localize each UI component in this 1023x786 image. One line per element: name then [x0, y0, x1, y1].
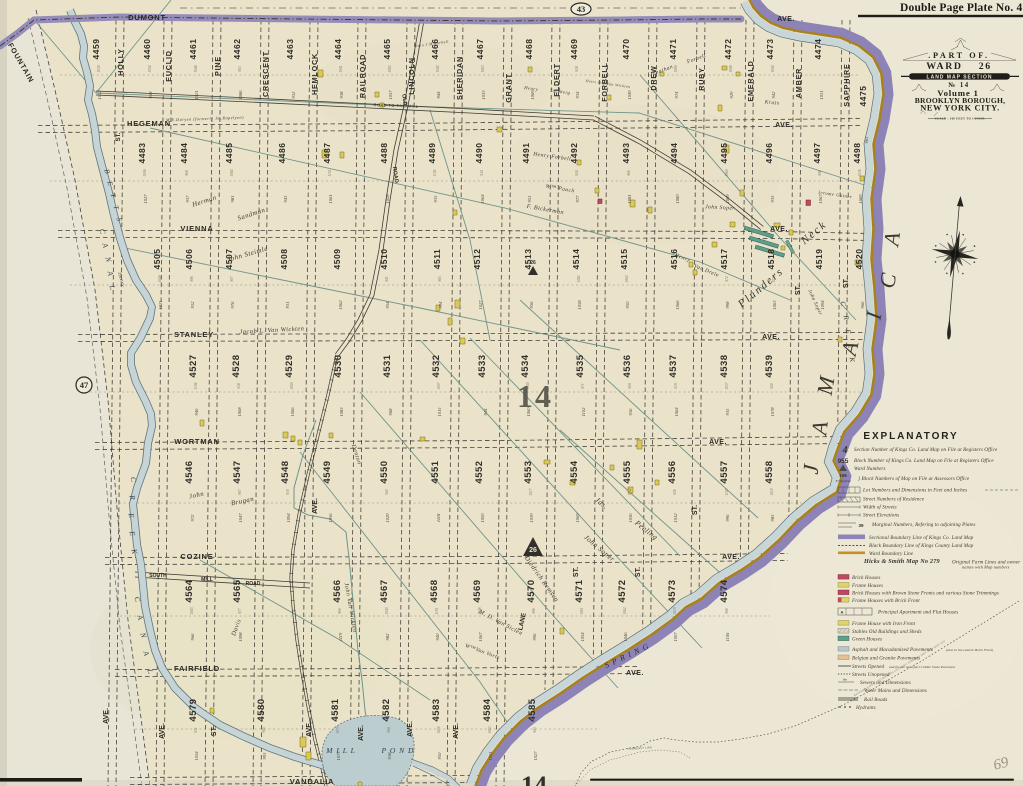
svg-text:Black Boundary Line of Kings C: Black Boundary Line of Kings County Land… — [869, 542, 974, 549]
svg-text:AVE.: AVE. — [775, 122, 793, 129]
svg-text:47: 47 — [80, 380, 89, 390]
svg-text:GRANT: GRANT — [504, 73, 513, 103]
svg-text:943: 943 — [283, 195, 288, 203]
svg-text:4514: 4514 — [571, 249, 581, 270]
svg-text:1119: 1119 — [338, 632, 343, 641]
svg-text:935: 935 — [433, 195, 438, 203]
svg-text:934: 934 — [575, 170, 579, 176]
svg-text:958: 958 — [148, 91, 153, 99]
svg-text:4570: 4570 — [526, 579, 537, 602]
svg-text:944: 944 — [483, 408, 488, 416]
svg-text:Lot Numbers and Dimensions in: Lot Numbers and Dimensions in Feet and I… — [862, 487, 967, 493]
svg-text:ST.: ST. — [843, 278, 850, 288]
svg-text:993: 993 — [262, 752, 267, 760]
svg-text:1034: 1034 — [194, 751, 199, 761]
svg-text:1057: 1057 — [437, 382, 441, 389]
svg-text:EMERALD: EMERALD — [746, 60, 755, 101]
svg-text:4546: 4546 — [184, 460, 195, 483]
svg-text:Hydrants: Hydrants — [855, 705, 876, 711]
svg-text:4462: 4462 — [232, 39, 242, 60]
svg-text:4483: 4483 — [137, 143, 147, 164]
svg-text:993: 993 — [533, 727, 537, 733]
svg-text:929: 929 — [729, 91, 734, 99]
svg-text:938: 938 — [575, 66, 579, 72]
svg-text:1040: 1040 — [385, 607, 389, 614]
svg-text:39: 39 — [858, 523, 864, 528]
svg-text:ST.: ST. — [211, 726, 218, 736]
svg-text:910: 910 — [286, 489, 290, 495]
svg-text:1000: 1000 — [480, 513, 485, 523]
svg-text:4550: 4550 — [379, 460, 390, 483]
svg-text:Streets Opened: Streets Opened — [852, 664, 885, 670]
svg-text:942: 942 — [771, 91, 776, 99]
svg-text:1016: 1016 — [437, 726, 441, 733]
svg-text:919: 919 — [674, 383, 678, 389]
svg-text:1081: 1081 — [627, 194, 632, 203]
svg-text:1027: 1027 — [478, 300, 483, 310]
svg-text:Asphalt and Macadamized Paveme: Asphalt and Macadamized Pavements — [851, 647, 933, 653]
svg-text:907: 907 — [230, 276, 234, 282]
svg-text:4506: 4506 — [184, 249, 194, 270]
svg-text:966: 966 — [190, 633, 195, 641]
svg-text:1019: 1019 — [673, 607, 677, 614]
svg-text:Belgian and Granite Pavements: Belgian and Granite Pavements — [852, 655, 920, 661]
svg-text:AVE.: AVE. — [312, 498, 319, 514]
svg-text:4533: 4533 — [477, 354, 488, 377]
svg-text:37 A(col'd): 37 A(col'd) — [835, 479, 851, 483]
svg-text:M I L L: M I L L — [325, 746, 356, 755]
svg-text:4528: 4528 — [231, 354, 242, 377]
svg-text:ST.: ST. — [635, 567, 642, 577]
svg-text:966: 966 — [338, 608, 342, 614]
svg-text:1098: 1098 — [729, 65, 733, 72]
svg-text:1017: 1017 — [529, 488, 533, 495]
svg-text:4538: 4538 — [719, 354, 730, 377]
svg-text:1098: 1098 — [238, 632, 243, 642]
svg-text:981: 981 — [230, 196, 235, 203]
svg-text:1104: 1104 — [194, 382, 198, 389]
svg-text:4467: 4467 — [475, 39, 485, 60]
svg-text:LAND MAP SECTION: LAND MAP SECTION — [927, 74, 993, 80]
svg-text:AVE.: AVE. — [626, 670, 644, 677]
svg-text:43: 43 — [577, 4, 586, 14]
svg-text:Marginal Numbers, Refering to: Marginal Numbers, Refering to adjoining … — [871, 521, 975, 528]
svg-text:1099: 1099 — [143, 169, 147, 176]
svg-text:STANLEY: STANLEY — [174, 330, 214, 339]
svg-text:4496: 4496 — [764, 143, 774, 164]
svg-text:4565: 4565 — [232, 579, 243, 602]
svg-text:4529: 4529 — [284, 354, 295, 377]
svg-text:4470: 4470 — [621, 39, 631, 60]
svg-text:4494: 4494 — [669, 143, 679, 164]
svg-text:Brick Houses: Brick Houses — [852, 575, 881, 581]
svg-text:EXPLANATORY: EXPLANATORY — [863, 431, 958, 442]
svg-text:1062: 1062 — [338, 300, 343, 310]
svg-text:1028: 1028 — [385, 194, 390, 204]
svg-text:106: 106 — [839, 473, 847, 478]
svg-text:983: 983 — [770, 514, 775, 522]
svg-text:1063: 1063 — [481, 65, 485, 72]
svg-text:976: 976 — [230, 301, 235, 309]
svg-text:4557: 4557 — [719, 460, 730, 483]
svg-text:1012: 1012 — [673, 513, 678, 523]
svg-text:Brick Houses with Brown Stone: Brick Houses with Brown Stone Fronts and… — [852, 590, 999, 596]
svg-text:905: 905 — [262, 727, 266, 733]
svg-text:4583: 4583 — [431, 698, 442, 721]
svg-text:SOUTH: SOUTH — [149, 573, 167, 579]
svg-text:4464: 4464 — [333, 39, 343, 60]
svg-text:Hicks & Smith Map No 279: Hicks & Smith Map No 279 — [863, 558, 940, 565]
svg-text:4554: 4554 — [569, 460, 580, 483]
svg-text:(also in the eastern Brick Fro: (also in the eastern Brick Front) — [946, 648, 994, 652]
svg-text:1046: 1046 — [623, 632, 628, 642]
svg-text:Sewers and Dimensions: Sewers and Dimensions — [860, 680, 911, 686]
svg-text:4558: 4558 — [764, 460, 775, 483]
svg-text:4534: 4534 — [520, 354, 531, 377]
svg-text:Streets Unopened: Streets Unopened — [852, 672, 890, 678]
svg-text:994: 994 — [387, 727, 391, 733]
svg-text:938: 938 — [237, 383, 241, 389]
svg-text:4461: 4461 — [188, 39, 198, 60]
svg-text:4473: 4473 — [765, 39, 775, 60]
svg-text:1062: 1062 — [623, 607, 627, 614]
svg-text:4536: 4536 — [622, 354, 633, 377]
svg-text:996: 996 — [532, 608, 536, 614]
svg-text:ST.: ST. — [795, 285, 802, 295]
svg-text:A: A — [841, 610, 844, 615]
svg-text:VIENNA: VIENNA — [180, 224, 213, 233]
svg-text:Rail Roads: Rail Roads — [863, 697, 888, 703]
svg-text:Block Number of Kings Co. Land: Block Number of Kings Co. Land Map on Fi… — [854, 457, 994, 464]
svg-text:4491: 4491 — [521, 143, 531, 164]
svg-text:LINCOLN: LINCOLN — [407, 57, 416, 95]
svg-text:1041: 1041 — [339, 65, 343, 72]
svg-text:1053: 1053 — [488, 726, 492, 733]
svg-text:} Block Numbers of Map on File: } Block Numbers of Map on File at Assess… — [858, 475, 970, 482]
svg-text:1107: 1107 — [725, 488, 729, 495]
svg-text:994: 994 — [438, 301, 443, 309]
svg-text:1105: 1105 — [433, 169, 437, 176]
svg-text:1060: 1060 — [725, 169, 729, 176]
svg-text:1050: 1050 — [526, 382, 530, 389]
svg-text:4527: 4527 — [188, 354, 199, 377]
svg-text:1021: 1021 — [194, 90, 199, 99]
svg-text:4574: 4574 — [719, 579, 730, 602]
svg-text:4566: 4566 — [332, 579, 343, 602]
svg-text:4585: 4585 — [527, 698, 538, 721]
svg-text:PINE: PINE — [213, 56, 222, 76]
svg-text:950: 950 — [625, 301, 630, 309]
svg-text:1094: 1094 — [771, 65, 775, 72]
svg-text:14: 14 — [521, 771, 547, 786]
svg-text:Ward Boundary Line: Ward Boundary Line — [869, 551, 914, 557]
svg-text:968: 968 — [388, 408, 393, 416]
svg-text:Section Number of Kings Co. La: Section Number of Kings Co. Land Map on … — [854, 446, 998, 453]
svg-text:1049: 1049 — [627, 90, 632, 100]
svg-text:1015: 1015 — [437, 407, 442, 417]
svg-text:1052: 1052 — [628, 488, 632, 495]
svg-text:4509: 4509 — [332, 249, 342, 270]
svg-text:4495: 4495 — [719, 143, 729, 164]
svg-text:996: 996 — [532, 633, 537, 641]
svg-text:1094: 1094 — [286, 513, 291, 523]
svg-text:926: 926 — [673, 489, 677, 495]
svg-text:4580: 4580 — [256, 698, 267, 721]
svg-text:4517: 4517 — [719, 249, 729, 270]
svg-text:AVE.: AVE. — [770, 226, 788, 233]
svg-text:971: 971 — [581, 383, 585, 389]
svg-text:COZINE: COZINE — [180, 552, 213, 561]
svg-text:4530: 4530 — [333, 354, 344, 377]
svg-text:4487: 4487 — [322, 143, 332, 164]
svg-text:1051: 1051 — [488, 751, 493, 760]
svg-text:1064: 1064 — [480, 194, 485, 204]
svg-text:Principal Apartment and Flat H: Principal Apartment and Flat Houses — [877, 609, 958, 615]
svg-text:Frame Houses: Frame Houses — [851, 583, 883, 589]
svg-text:1023: 1023 — [772, 275, 776, 282]
svg-text:4535: 4535 — [575, 354, 586, 377]
svg-text:Double Page Plate No. 4: Double Page Plate No. 4 — [900, 2, 1023, 14]
svg-text:4493: 4493 — [621, 143, 631, 164]
svg-text:1058: 1058 — [577, 300, 582, 310]
svg-text:4584: 4584 — [482, 698, 493, 721]
svg-text:1047: 1047 — [238, 513, 243, 523]
svg-text:HEGEMAN: HEGEMAN — [127, 119, 171, 128]
svg-text:1010: 1010 — [770, 488, 774, 495]
svg-text:4552: 4552 — [474, 460, 485, 483]
svg-text:1013: 1013 — [481, 90, 486, 100]
svg-text:VANDALIA: VANDALIA — [290, 777, 335, 786]
svg-text:Street Elevations: Street Elevations — [863, 512, 899, 518]
svg-text:1009: 1009 — [290, 382, 294, 389]
svg-text:1086: 1086 — [238, 90, 243, 100]
svg-text:AVE.: AVE. — [358, 725, 365, 741]
svg-text:931: 931 — [285, 302, 290, 309]
svg-text:4512: 4512 — [472, 249, 482, 270]
svg-text:4485: 4485 — [224, 143, 234, 164]
svg-text:4505: 4505 — [152, 249, 162, 270]
svg-text:4511: 4511 — [432, 249, 442, 269]
svg-text:and for the most part Cobble S: and for the most part Cobble Stone Pavem… — [889, 665, 956, 669]
svg-text:1031: 1031 — [819, 90, 824, 99]
svg-text:4568: 4568 — [429, 579, 440, 602]
svg-text:EUCLID: EUCLID — [164, 50, 173, 82]
svg-text:4553: 4553 — [523, 460, 534, 483]
svg-text:AMBER: AMBER — [794, 68, 803, 98]
svg-text:AVE.: AVE. — [159, 723, 166, 739]
svg-text:1021: 1021 — [158, 300, 163, 309]
svg-text:1007: 1007 — [673, 632, 678, 642]
svg-text:4474: 4474 — [813, 39, 823, 60]
svg-text:1118: 1118 — [436, 513, 441, 522]
svg-text:936: 936 — [628, 408, 633, 416]
svg-text:954: 954 — [385, 301, 390, 309]
svg-text:4569: 4569 — [472, 579, 483, 602]
svg-text:ST.: ST. — [692, 505, 699, 515]
svg-text:.PART OF.: .PART OF. — [928, 51, 989, 60]
svg-text:1101: 1101 — [328, 169, 332, 176]
svg-text:934: 934 — [575, 91, 580, 99]
svg-text:AVE.: AVE. — [762, 334, 780, 341]
svg-text:1027: 1027 — [533, 751, 538, 761]
svg-text:4465: 4465 — [382, 39, 392, 60]
svg-text:1061: 1061 — [328, 194, 333, 203]
svg-text:944: 944 — [436, 91, 441, 99]
svg-text:NEW YORK CITY.: NEW YORK CITY. — [920, 104, 1000, 113]
svg-text:1069: 1069 — [725, 194, 730, 204]
svg-text:968: 968 — [185, 170, 189, 176]
svg-text:1101: 1101 — [435, 607, 439, 614]
svg-text:4556: 4556 — [667, 460, 678, 483]
svg-text:935: 935 — [725, 408, 730, 416]
svg-text:1029: 1029 — [385, 513, 390, 523]
svg-text:972: 972 — [190, 514, 195, 522]
svg-text:983: 983 — [438, 276, 442, 282]
svg-text:4515: 4515 — [619, 249, 629, 270]
svg-text:1073: 1073 — [336, 726, 340, 733]
svg-text:4513: 4513 — [523, 249, 533, 270]
svg-text:CRESCENT: CRESCENT — [261, 51, 270, 97]
svg-text:950: 950 — [770, 383, 774, 389]
svg-text:4463: 4463 — [285, 39, 295, 60]
svg-text:4555: 4555 — [622, 460, 633, 483]
svg-text:1078: 1078 — [770, 407, 775, 417]
svg-text:4581: 4581 — [330, 698, 341, 721]
svg-text:4486: 4486 — [277, 143, 287, 164]
svg-text:Frame House with Iron Front: Frame House with Iron Front — [851, 621, 916, 627]
svg-text:AVE.: AVE. — [709, 439, 727, 446]
svg-text:DUMONT: DUMONT — [128, 13, 166, 22]
svg-text:998: 998 — [725, 301, 730, 309]
svg-text:1039: 1039 — [97, 65, 101, 72]
svg-text:4518: 4518 — [766, 249, 776, 270]
svg-text:932: 932 — [190, 301, 195, 309]
svg-text:937: 937 — [185, 195, 190, 203]
svg-text:4549: 4549 — [322, 460, 333, 483]
svg-text:1089: 1089 — [674, 65, 678, 72]
svg-text:SHERIDAN: SHERIDAN — [455, 56, 464, 100]
svg-text:Frame Houses with Brick Front: Frame Houses with Brick Front — [851, 598, 920, 604]
svg-text:AVE.: AVE. — [777, 16, 795, 23]
svg-text:4579: 4579 — [188, 698, 199, 721]
svg-text:AVE.: AVE. — [306, 721, 313, 737]
svg-text:4548: 4548 — [280, 460, 291, 483]
svg-text:P O N D: P O N D — [381, 746, 415, 755]
svg-text:1063: 1063 — [772, 300, 777, 310]
svg-text:971: 971 — [194, 727, 198, 733]
svg-text:951: 951 — [527, 196, 532, 203]
svg-text:1048: 1048 — [478, 607, 482, 614]
svg-text:1102: 1102 — [581, 407, 586, 417]
svg-text:950: 950 — [437, 752, 442, 760]
svg-text:ST.: ST. — [116, 132, 122, 141]
svg-text:1067: 1067 — [478, 632, 483, 642]
svg-text:1064: 1064 — [674, 407, 679, 417]
svg-text:1036: 1036 — [858, 169, 862, 176]
svg-text:Green Houses: Green Houses — [852, 636, 882, 642]
svg-text:4564: 4564 — [184, 579, 195, 602]
svg-text:934: 934 — [480, 170, 484, 176]
svg-text:1068: 1068 — [237, 407, 242, 417]
svg-text:1056: 1056 — [328, 513, 333, 523]
svg-text:WARD 26: WARD 26 — [926, 61, 992, 72]
svg-text:14: 14 — [517, 378, 553, 414]
svg-text:1082: 1082 — [577, 275, 581, 282]
svg-text:RUBY: RUBY — [697, 67, 706, 91]
svg-text:1054: 1054 — [148, 65, 152, 72]
svg-text:Sectional Boundary Line of Kin: Sectional Boundary Line of Kings Co. Lan… — [869, 534, 974, 541]
svg-text:1027: 1027 — [143, 194, 148, 204]
svg-text:986: 986 — [190, 276, 194, 282]
svg-text:ROAD: ROAD — [246, 581, 261, 587]
svg-text:903: 903 — [238, 66, 242, 72]
svg-text:955: 955 — [838, 458, 849, 465]
svg-text:4498: 4498 — [852, 143, 862, 164]
svg-text:974: 974 — [674, 91, 679, 99]
svg-text:1083: 1083 — [388, 65, 392, 72]
svg-text:1061: 1061 — [580, 607, 584, 614]
svg-text:4475: 4475 — [858, 86, 868, 107]
svg-text:26: 26 — [530, 260, 536, 266]
svg-text:AVE.: AVE. — [407, 721, 414, 737]
svg-text:941: 941 — [385, 276, 389, 282]
svg-text:982: 982 — [385, 633, 390, 641]
svg-text:names with Map numbers: names with Map numbers — [962, 564, 1010, 569]
svg-text:998: 998 — [818, 170, 822, 176]
svg-text:1069: 1069 — [858, 194, 863, 204]
svg-text:4551: 4551 — [430, 460, 441, 483]
svg-text:4572: 4572 — [617, 579, 628, 602]
svg-text:1069: 1069 — [575, 513, 580, 523]
svg-text:4537: 4537 — [668, 354, 679, 377]
svg-text:4508: 4508 — [279, 249, 289, 270]
svg-text:8in: 8in — [843, 678, 848, 682]
svg-text:1083: 1083 — [190, 607, 194, 614]
svg-text:1036: 1036 — [628, 513, 633, 523]
svg-text:1066: 1066 — [290, 407, 295, 417]
svg-text:4567: 4567 — [379, 579, 390, 602]
svg-text:Ward Numbers: Ward Numbers — [854, 466, 886, 472]
svg-text:909: 909 — [628, 383, 632, 389]
svg-text:1054: 1054 — [580, 632, 585, 642]
svg-text:4488: 4488 — [379, 143, 389, 164]
svg-text:AVE.: AVE. — [453, 723, 460, 739]
svg-text:1057: 1057 — [388, 90, 393, 100]
svg-text:ST.: ST. — [573, 567, 580, 577]
svg-text:972: 972 — [725, 276, 729, 282]
svg-text:4547: 4547 — [232, 460, 243, 483]
svg-text:966: 966 — [860, 301, 865, 309]
svg-text:977: 977 — [575, 195, 580, 203]
svg-text:1037: 1037 — [725, 382, 729, 389]
svg-text:990: 990 — [725, 608, 729, 614]
svg-text:4489: 4489 — [427, 143, 437, 164]
svg-text:4582: 4582 — [381, 698, 392, 721]
svg-text:4520: 4520 — [854, 249, 864, 270]
svg-text:935: 935 — [770, 195, 775, 203]
svg-text:932: 932 — [291, 91, 296, 99]
svg-text:1083: 1083 — [339, 407, 344, 417]
svg-text:4490: 4490 — [474, 143, 484, 164]
svg-text:4571: 4571 — [574, 579, 585, 602]
svg-text:4: 4 — [842, 445, 848, 456]
svg-text:FAIRFIELD: FAIRFIELD — [174, 664, 220, 673]
svg-text:SAPPHIRE: SAPPHIRE — [842, 63, 851, 106]
svg-text:1002: 1002 — [97, 90, 102, 100]
svg-text:977: 977 — [238, 608, 242, 614]
svg-text:967: 967 — [238, 489, 242, 495]
svg-text:MILL: MILL — [201, 577, 213, 583]
